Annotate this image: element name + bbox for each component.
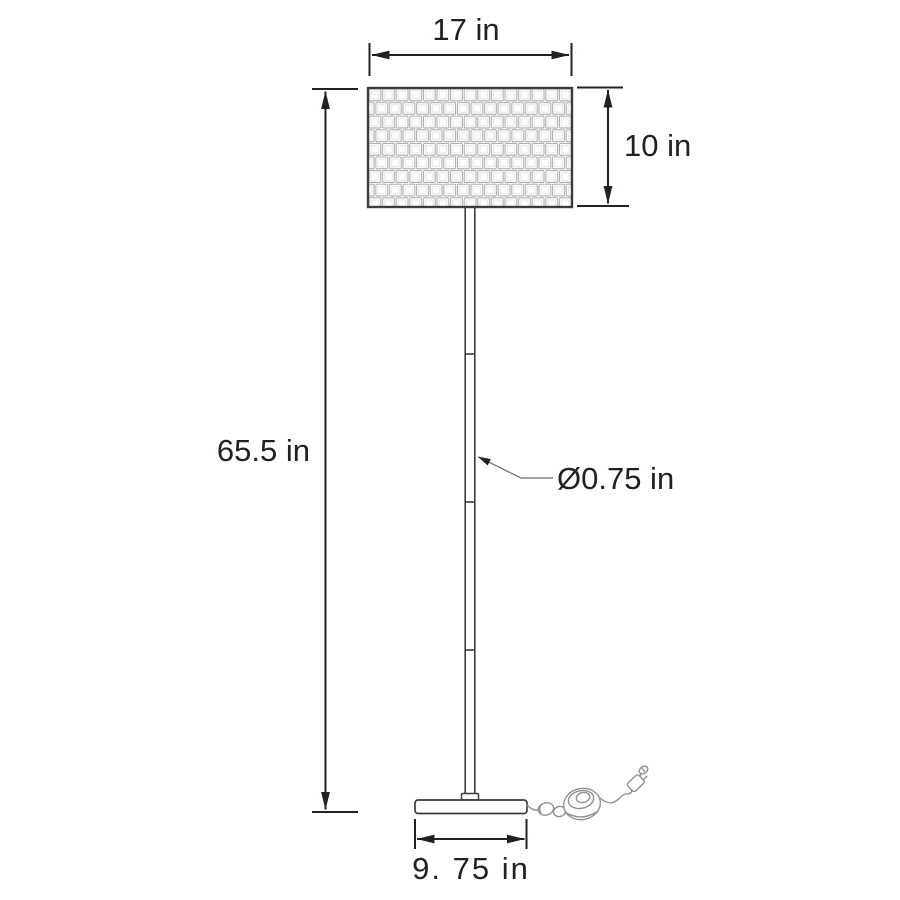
pole-diameter-callout: Ø0.75 in <box>479 457 675 496</box>
lamp-shade <box>368 88 572 207</box>
power-cord <box>600 790 633 803</box>
diagram-canvas: 17 in 10 in 65.5 in 9. 75 in Ø0.75 in <box>0 0 900 900</box>
dimension-overall-height: 65.5 in <box>217 89 358 812</box>
base-width-label: 9. 75 in <box>412 851 530 886</box>
leader-line <box>479 457 554 478</box>
power-plug <box>626 765 649 793</box>
lamp-pole <box>465 207 475 800</box>
dimension-shade-height: 10 in <box>577 88 691 207</box>
foot-switch <box>561 785 604 823</box>
cord-assembly <box>527 765 649 823</box>
lamp-base <box>415 800 527 814</box>
dimension-shade-width: 17 in <box>370 12 572 76</box>
floor-lamp-dimension-diagram: 17 in 10 in 65.5 in 9. 75 in Ø0.75 in <box>0 0 900 900</box>
cord-connector <box>537 801 567 818</box>
shade-height-label: 10 in <box>624 128 691 163</box>
power-cord <box>527 805 538 810</box>
overall-height-label: 65.5 in <box>217 433 310 468</box>
plug-prong <box>643 776 647 779</box>
pole-collar <box>462 794 479 801</box>
lamp-drawing <box>368 88 572 814</box>
pole-diameter-label: Ø0.75 in <box>557 461 674 496</box>
shade-width-label: 17 in <box>432 12 499 47</box>
dimension-base-width: 9. 75 in <box>412 819 530 886</box>
